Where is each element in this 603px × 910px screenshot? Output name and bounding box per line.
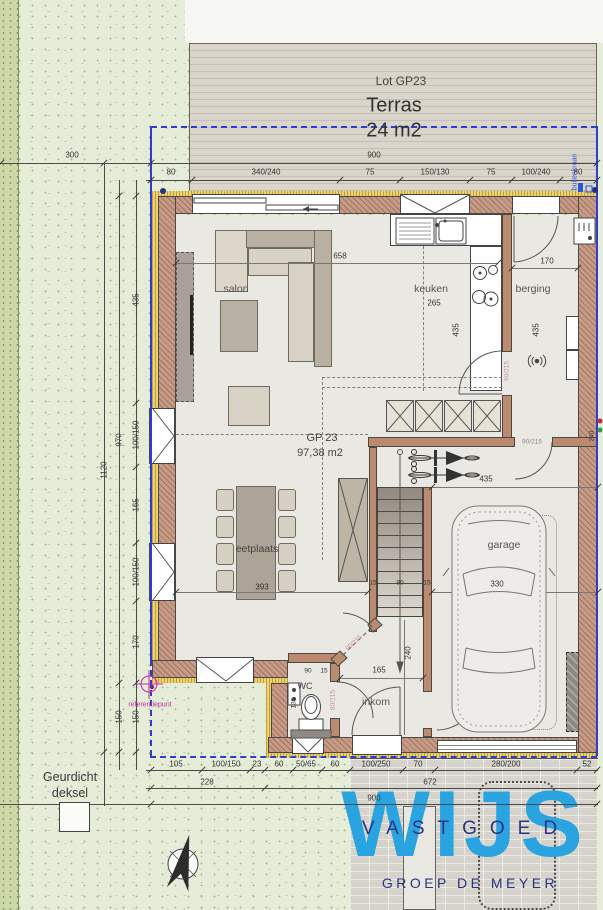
dim-left-total: 1120	[100, 461, 109, 478]
dim-bottom-5: 60	[331, 760, 340, 769]
terrace-name: Terras	[366, 95, 422, 118]
armchair	[228, 386, 270, 426]
chair	[278, 516, 296, 538]
room-label-keuken: keuken	[414, 283, 448, 295]
dim-line-garage-top	[432, 487, 598, 488]
room-label-salon: salon	[223, 283, 248, 295]
chair	[216, 489, 234, 511]
sofa-back-side	[314, 230, 332, 367]
room-label-wc: WC	[298, 681, 313, 691]
dim-top-3: 150/130	[421, 168, 450, 177]
tall-cabinet	[338, 478, 368, 582]
chair	[278, 543, 296, 565]
dim-bottom-sub-1: 672	[423, 778, 436, 787]
note-odor-lid-2: deksel	[52, 786, 88, 800]
dim-berging-width: 170	[540, 257, 553, 266]
dim-bottom-sub-0: 228	[200, 778, 213, 787]
sofa-seat-side	[288, 262, 314, 362]
room-label-inkom: inkom	[362, 696, 390, 708]
dim-bottom-9: 52	[583, 760, 592, 769]
dim-bottom-8: 280/200	[492, 760, 521, 769]
dim-bottom-0: 105	[169, 760, 182, 769]
dashed-line	[176, 434, 368, 435]
dim-bottom-total: 900	[367, 794, 380, 803]
dim-right-wall: 240	[589, 431, 596, 442]
dim-left-front: 150	[115, 710, 124, 723]
dim-left-2: 165	[132, 498, 141, 511]
floor-plan: Lot GP23 Terras 24 m2 WIJS VASTGOED GROE…	[0, 0, 603, 910]
window-left-2	[149, 543, 175, 601]
dim-bottom-4: 50/65	[296, 760, 316, 769]
coffee-table	[220, 300, 258, 352]
dim-left-0: 435	[132, 293, 141, 306]
dim-garage-top: 435	[479, 475, 492, 484]
dim-top-0: 80	[167, 168, 176, 177]
dim-left-building: 970	[115, 433, 124, 446]
dim-line-hall	[340, 678, 423, 679]
wall-wc-right-lower	[330, 718, 340, 737]
chair	[278, 570, 296, 592]
dim-top-1: 340/240	[252, 168, 281, 177]
dim-bottom-2: 23	[253, 760, 262, 769]
dim-bottom-6: 100/250	[362, 760, 391, 769]
dim-line-top	[0, 163, 598, 164]
terrace-area: 24 m2	[366, 120, 422, 143]
logo-groep-de-meyer: GROEP DE MEYER	[370, 875, 570, 891]
dim-keuken-depth: 435	[452, 323, 461, 336]
dim-stair-0: 15	[369, 580, 376, 587]
kitchen-counter-top	[390, 214, 502, 246]
odor-lid-box	[59, 802, 90, 832]
door-size-wc: 80/215	[330, 690, 337, 710]
dim-line-top-segments	[146, 180, 598, 181]
dim-top-2: 75	[366, 168, 375, 177]
dim-site-left: 300	[65, 151, 78, 160]
room-label-berging: berging	[515, 283, 550, 295]
front-door	[352, 735, 402, 755]
window-left-1	[149, 408, 175, 464]
door-size-keuken: 90/215	[504, 361, 511, 381]
dim-stair-2: 15	[423, 580, 430, 587]
lot-boundary-right	[596, 126, 598, 756]
stairs	[377, 487, 423, 617]
dashed-line	[322, 387, 502, 388]
dim-left-1: 100/150	[132, 421, 141, 450]
note-outdoor-tap: buitenkraan	[572, 154, 579, 191]
kitchen-cabinet	[386, 400, 414, 432]
dim-line-hall-v	[404, 620, 405, 735]
dim-hall-depth: 240	[404, 646, 413, 659]
dashed-line	[322, 377, 323, 560]
dim-stair-1: 90	[396, 580, 403, 587]
dim-garage-width: 330	[490, 580, 503, 589]
window-salon-front	[196, 657, 254, 683]
wall-stair-right	[423, 487, 432, 692]
wall-stair-left	[369, 447, 377, 632]
wall-right	[578, 196, 598, 753]
dim-keuken-island: 265	[427, 299, 440, 308]
dim-top-5: 100/240	[522, 168, 551, 177]
unit-code: GP 23	[307, 432, 338, 444]
dim-line-berging	[512, 268, 578, 269]
dim-line-left-outer	[104, 163, 105, 806]
door-berging	[512, 196, 560, 214]
wall-status-dots	[598, 419, 603, 433]
note-reference-point: referentiepunt	[128, 702, 171, 709]
cabinet-cross	[339, 479, 367, 581]
wall-garage-north-west	[368, 437, 515, 447]
chair	[216, 543, 234, 565]
north-arrow	[167, 832, 200, 891]
dim-bottom-1: 100/150	[212, 760, 241, 769]
dim-salon-width: 658	[333, 252, 346, 261]
window-wc	[292, 736, 324, 754]
room-label-eetplaats: eetplaats	[236, 543, 279, 555]
dim-top-4: 75	[487, 168, 496, 177]
dim-wc-gap: 15	[320, 668, 327, 675]
lawn-strip-left	[0, 0, 19, 910]
dim-wc-width: 90	[304, 668, 311, 675]
door-size-garage: 90/215	[522, 439, 542, 446]
dim-hall-width: 165	[372, 666, 385, 675]
dashed-line	[322, 377, 502, 378]
dim-line-bottom-1	[146, 770, 598, 771]
wall-keuken-berging-upper	[502, 214, 512, 352]
kitchen-counter-right	[470, 246, 502, 391]
sliding-window-salon	[192, 194, 340, 214]
dashed-line	[423, 246, 424, 391]
room-label-garage: garage	[488, 539, 521, 551]
dim-bottom-3: 60	[275, 760, 284, 769]
chair	[278, 489, 296, 511]
tv	[190, 295, 193, 355]
dim-top-total: 900	[367, 151, 380, 160]
chair	[216, 570, 234, 592]
logo-vastgoed: VASTGOED	[336, 818, 596, 840]
dim-line-garage	[432, 592, 598, 593]
kitchen-cabinet	[473, 400, 501, 432]
dim-table-length: 393	[255, 583, 268, 592]
lot-boundary-left	[150, 126, 152, 660]
garage-sectional-door	[437, 740, 577, 753]
wall-keuken-berging-lower	[502, 395, 512, 442]
note-odor-lid-1: Geurdicht	[43, 770, 97, 784]
dim-berging-depth: 435	[532, 323, 541, 336]
kitchen-cabinet	[415, 400, 443, 432]
dim-line-bottom-2	[146, 788, 598, 789]
wall-wc-top	[288, 653, 338, 663]
kitchen-cabinet	[444, 400, 472, 432]
terrace-lot-label: Lot GP23	[376, 74, 427, 88]
window-keuken	[400, 194, 470, 214]
lot-boundary-bottom	[150, 756, 597, 758]
dim-left-4: 170	[132, 635, 141, 648]
dim-left-5: 150	[132, 710, 141, 723]
unit-area: 97,38 m2	[297, 447, 343, 459]
dim-line-salon	[176, 263, 498, 264]
dim-line-table	[176, 592, 368, 593]
dim-wc-depth: 135	[291, 698, 298, 709]
dim-bottom-7: 70	[414, 760, 423, 769]
chair	[216, 516, 234, 538]
dim-left-3: 100/150	[132, 558, 141, 587]
wall-stair-right-low	[423, 728, 432, 737]
neighbour-lot	[185, 0, 603, 43]
